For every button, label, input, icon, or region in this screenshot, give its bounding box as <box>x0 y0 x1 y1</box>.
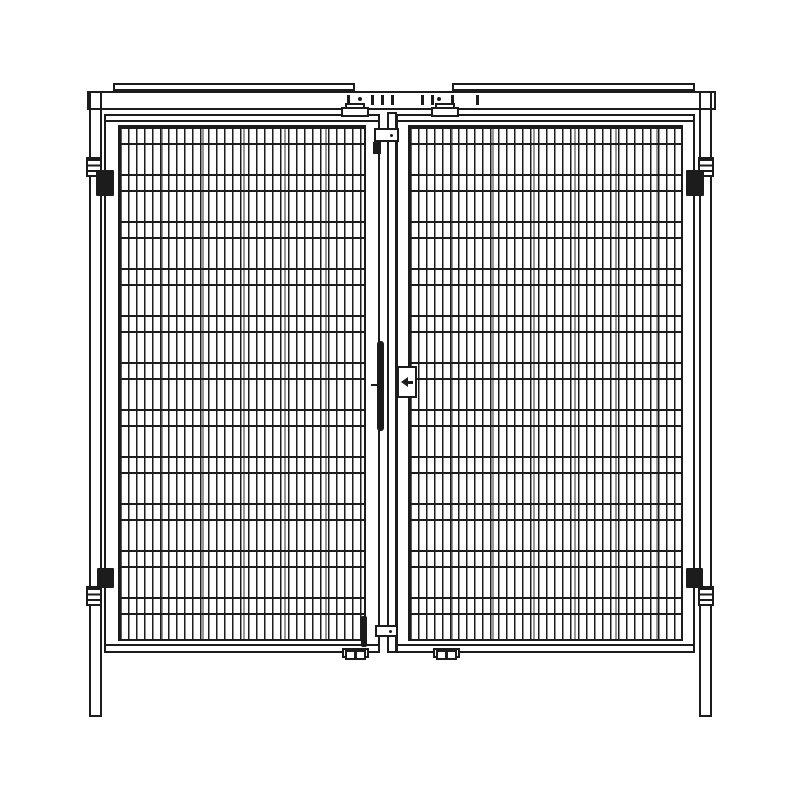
door-right <box>396 114 695 653</box>
header-tick <box>476 95 479 105</box>
hinge-body <box>686 170 704 196</box>
drop-bolt-bottom <box>361 616 367 647</box>
header-bolt-icon <box>358 97 362 101</box>
bolt-icon <box>389 630 392 633</box>
hinge-adjuster <box>86 586 102 606</box>
header-rail <box>87 91 716 110</box>
header-tick <box>381 95 384 105</box>
header-bolt-icon <box>437 97 441 101</box>
door-bottom-rail-line <box>106 644 378 646</box>
lock-plate <box>397 366 417 398</box>
drop-bolt-top <box>373 142 381 154</box>
handle-tick <box>371 384 377 386</box>
bracket-base <box>341 107 369 117</box>
arrow-tail <box>408 381 413 384</box>
center-astragal <box>387 112 397 653</box>
door-top-rail-line <box>398 120 693 122</box>
hinge-adjuster <box>698 586 714 606</box>
header-tick <box>371 95 374 105</box>
bracket-top-left <box>341 103 369 117</box>
latch-keeper-top <box>374 128 399 142</box>
bracket-foot <box>355 650 366 660</box>
arrow-head <box>401 377 408 387</box>
cover-plate-right <box>452 83 695 91</box>
bracket-top-right <box>431 103 459 117</box>
handle-bar <box>377 341 384 431</box>
mesh-panel-right <box>408 125 683 641</box>
door-bottom-rail-line <box>398 644 693 646</box>
hinge-body <box>96 170 114 196</box>
latch-keeper-bottom <box>375 625 398 637</box>
hinge-body <box>686 568 703 588</box>
bracket-base <box>431 107 459 117</box>
door-top-rail-line <box>106 120 378 122</box>
foot-bracket-bottom-right <box>433 648 460 660</box>
foot-bracket-bottom-left <box>342 648 369 660</box>
drawing-canvas <box>0 0 800 800</box>
mesh-panel-left <box>118 125 366 641</box>
bolt-icon <box>390 134 393 137</box>
header-tick <box>421 95 424 105</box>
bracket-foot <box>446 650 457 660</box>
lock-arrow-icon <box>401 377 413 387</box>
hinge-body <box>97 568 114 588</box>
header-tick <box>391 95 394 105</box>
door-left <box>104 114 380 653</box>
cover-plate-left <box>113 83 355 91</box>
